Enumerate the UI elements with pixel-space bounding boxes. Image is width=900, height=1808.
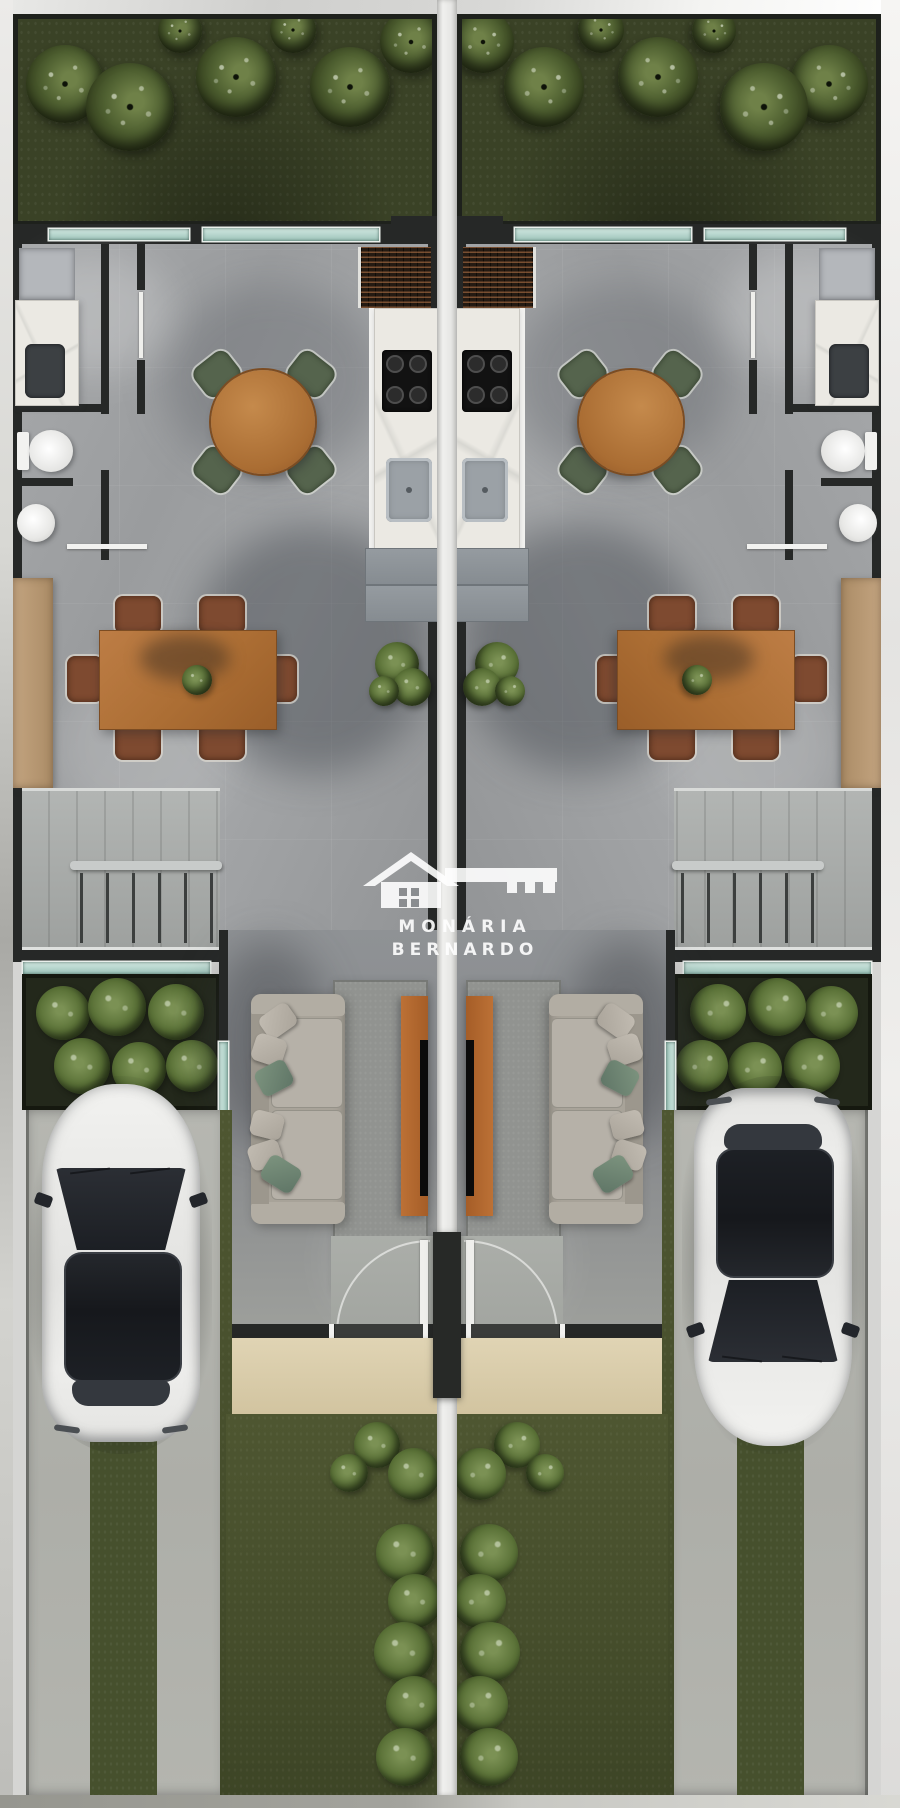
bush-icon xyxy=(88,978,146,1036)
driveway-edge xyxy=(865,1110,868,1795)
door-frame xyxy=(560,1324,565,1338)
tree-icon xyxy=(196,37,276,117)
back-garden xyxy=(13,14,437,226)
front-lawn xyxy=(457,1414,668,1795)
logo-key-tooth xyxy=(525,882,535,893)
front-wall-west xyxy=(674,950,881,962)
logo-key-shaft xyxy=(445,868,557,882)
burner-icon xyxy=(388,388,402,402)
left-edge-margin xyxy=(0,0,13,1808)
sofa-armrest xyxy=(251,1202,345,1224)
barbecue-grill xyxy=(358,247,431,308)
faucet-icon xyxy=(482,487,488,493)
bush-icon xyxy=(804,986,858,1040)
front-lawn xyxy=(226,1414,437,1795)
driveway-edge xyxy=(26,1110,29,1795)
floor-plan-render: MONÁRIA BERNARDO xyxy=(0,0,900,1808)
burner-icon xyxy=(469,357,483,371)
stair-railing xyxy=(70,861,222,870)
railing-post xyxy=(184,873,187,943)
hedge-bush-icon xyxy=(376,1524,434,1582)
hedge-bush-icon xyxy=(460,1728,518,1786)
bush-icon xyxy=(148,984,204,1040)
dining-chair xyxy=(199,596,245,634)
hall-wall-stub xyxy=(749,244,757,290)
breakfast-round-table xyxy=(211,370,315,474)
burner-icon xyxy=(411,388,425,402)
living-west-wall xyxy=(219,930,228,1042)
staircase xyxy=(22,788,220,955)
dining-chair xyxy=(649,596,695,634)
door-opening xyxy=(335,1324,423,1338)
tree-icon xyxy=(270,14,316,53)
table-plant xyxy=(682,665,712,695)
cooktop xyxy=(462,350,512,412)
burner-icon xyxy=(492,388,506,402)
toilet-bowl xyxy=(821,430,865,472)
floor-plant xyxy=(369,676,399,706)
hall-wall-stub xyxy=(137,360,145,414)
washing-machine xyxy=(19,248,75,300)
laundry-sink xyxy=(829,344,869,398)
logo-window-pane xyxy=(411,899,419,907)
front-window-west xyxy=(684,962,871,974)
barbecue-grill xyxy=(463,247,536,308)
back-garden xyxy=(457,14,881,226)
hedge-bush-icon xyxy=(386,1676,437,1732)
breakfast-round-table xyxy=(579,370,683,474)
railing-post xyxy=(733,873,736,943)
driveway-grass-strip xyxy=(737,1432,804,1795)
dining-chair xyxy=(67,656,103,702)
bush-icon xyxy=(526,1454,564,1492)
hedge-bush-icon xyxy=(457,1676,508,1732)
dining-chair xyxy=(791,656,827,702)
bush-icon xyxy=(748,978,806,1036)
tree-icon xyxy=(380,14,437,73)
interior-wall xyxy=(13,478,73,486)
bush-icon xyxy=(36,986,90,1040)
kitchen-counter xyxy=(457,308,520,568)
tree-icon xyxy=(618,37,698,117)
entry-divider-wall xyxy=(433,1232,461,1398)
car-rear-window xyxy=(724,1124,822,1150)
tree-icon xyxy=(86,63,174,151)
cooktop xyxy=(382,350,432,412)
burner-icon xyxy=(492,357,506,371)
utility-partition-wall xyxy=(785,244,793,414)
bush-icon xyxy=(457,1448,506,1500)
floor-plant xyxy=(495,676,525,706)
bath-door-leaf xyxy=(747,544,827,549)
logo-key-tooth xyxy=(543,882,555,893)
kitchen-cabinet xyxy=(457,548,529,585)
laundry-sink xyxy=(25,344,65,398)
entry-paving-mat xyxy=(457,1338,662,1414)
door-frame xyxy=(466,1324,471,1338)
railing-post xyxy=(210,873,213,943)
dining-chair xyxy=(733,596,779,634)
railing-post xyxy=(785,873,788,943)
washing-machine xyxy=(819,248,875,300)
tree-icon xyxy=(578,14,624,53)
utility-partition-wall xyxy=(101,244,109,414)
sofa-armrest xyxy=(549,994,643,1016)
brand-name-line1: MONÁRIA xyxy=(352,916,572,939)
tv-screen xyxy=(420,1040,428,1196)
hedge-bush-icon xyxy=(388,1574,437,1628)
hedge-bush-icon xyxy=(457,1574,506,1628)
round-basin xyxy=(839,504,877,542)
car-rear-window xyxy=(72,1380,170,1406)
door-leaf xyxy=(139,292,143,358)
burner-icon xyxy=(469,388,483,402)
toilet-tank xyxy=(865,432,877,470)
tree-icon xyxy=(158,14,202,53)
dining-table xyxy=(99,630,277,730)
dining-table xyxy=(617,630,795,730)
kitchen-sink xyxy=(462,458,508,522)
car-roof-sunroof xyxy=(64,1252,182,1382)
kitchen-sink xyxy=(386,458,432,522)
door-leaf xyxy=(751,292,755,358)
logo-roof xyxy=(363,852,459,886)
tv-screen xyxy=(466,1040,474,1196)
logo-window-pane xyxy=(411,888,419,896)
brand-watermark: MONÁRIA BERNARDO xyxy=(352,846,572,962)
back-window xyxy=(705,229,845,240)
bottom-sidewalk xyxy=(0,1795,900,1808)
toilet-bowl xyxy=(29,430,73,472)
railing-post xyxy=(158,873,161,943)
brand-name-line2: BERNARDO xyxy=(352,939,572,962)
tree-icon xyxy=(692,14,736,53)
front-door-leaf xyxy=(420,1240,428,1332)
hedge-bush-icon xyxy=(374,1622,434,1682)
hedge-bush-icon xyxy=(376,1728,434,1786)
bush-icon xyxy=(690,984,746,1040)
railing-post xyxy=(811,873,814,943)
back-window-large xyxy=(515,228,691,241)
sideboard xyxy=(13,578,53,788)
tree-icon xyxy=(457,14,514,73)
living-west-wall xyxy=(666,930,675,1042)
sideboard xyxy=(841,578,881,788)
tree-icon xyxy=(504,47,584,127)
hall-wall-stub xyxy=(137,244,145,290)
faucet-icon xyxy=(406,487,412,493)
car xyxy=(38,1082,204,1448)
staircase xyxy=(674,788,872,955)
hall-wall-stub xyxy=(749,360,757,414)
back-window xyxy=(49,229,189,240)
bath-door-leaf xyxy=(67,544,147,549)
table-plant xyxy=(182,665,212,695)
railing-post xyxy=(707,873,710,943)
tree-icon xyxy=(310,47,390,127)
railing-post xyxy=(759,873,762,943)
railing-post xyxy=(681,873,684,943)
driveway-grass-strip xyxy=(90,1432,157,1795)
front-wall-west xyxy=(13,950,220,962)
kitchen-cabinet xyxy=(457,585,529,622)
entry-paving-mat xyxy=(232,1338,437,1414)
car-roof-sunroof xyxy=(716,1148,834,1278)
logo-window-pane xyxy=(399,899,407,907)
house-key-logo-icon xyxy=(359,846,565,912)
burner-icon xyxy=(388,357,402,371)
tree-icon xyxy=(720,63,808,151)
right-edge-margin xyxy=(881,0,900,1808)
railing-post xyxy=(80,873,83,943)
door-frame xyxy=(329,1324,334,1338)
bush-icon xyxy=(330,1454,368,1492)
railing-post xyxy=(106,873,109,943)
interior-wall xyxy=(821,478,881,486)
stair-railing xyxy=(672,861,824,870)
door-opening xyxy=(471,1324,559,1338)
dining-chair xyxy=(115,596,161,634)
back-window-large xyxy=(203,228,379,241)
logo-window-pane xyxy=(399,888,407,896)
kitchen-counter xyxy=(374,308,437,568)
sofa-armrest xyxy=(549,1202,643,1224)
logo-key-tooth xyxy=(507,882,517,893)
hedge-bush-icon xyxy=(460,1622,520,1682)
bush-icon xyxy=(388,1448,437,1500)
burner-icon xyxy=(411,357,425,371)
kitchen-cabinet xyxy=(365,548,437,585)
front-window-west xyxy=(23,962,210,974)
sofa xyxy=(251,994,345,1224)
kitchen-cabinet xyxy=(365,585,437,622)
front-door-leaf xyxy=(466,1240,474,1332)
toilet-tank xyxy=(17,432,29,470)
railing-post xyxy=(132,873,135,943)
hedge-bush-icon xyxy=(460,1524,518,1582)
round-basin xyxy=(17,504,55,542)
counter-edge xyxy=(520,308,525,566)
sofa xyxy=(549,994,643,1224)
car xyxy=(690,1082,856,1448)
door-frame xyxy=(423,1324,428,1338)
